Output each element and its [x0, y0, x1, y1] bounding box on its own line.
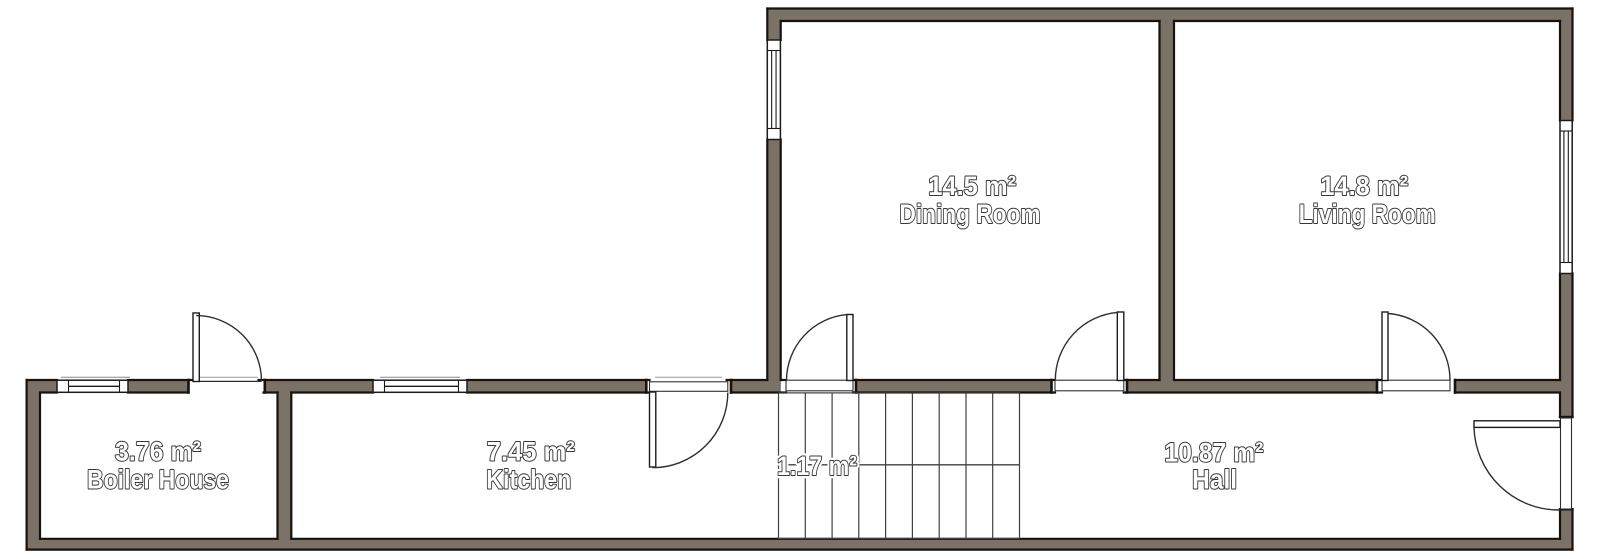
svg-text:14.8 m²: 14.8 m² [1320, 171, 1408, 201]
svg-text:Kitchen: Kitchen [486, 465, 571, 495]
svg-text:Dining Room: Dining Room [900, 199, 1041, 229]
svg-text:1.17 m²: 1.17 m² [777, 451, 857, 481]
svg-text:7.45 m²: 7.45 m² [487, 437, 575, 467]
svg-text:14.5 m²: 14.5 m² [928, 171, 1016, 201]
svg-text:Boiler House: Boiler House [87, 464, 229, 494]
svg-text:Living Room: Living Room [1299, 199, 1436, 229]
svg-text:Hall: Hall [1192, 465, 1237, 495]
svg-text:3.76 m²: 3.76 m² [115, 437, 201, 467]
svg-text:10.87 m²: 10.87 m² [1164, 437, 1263, 467]
